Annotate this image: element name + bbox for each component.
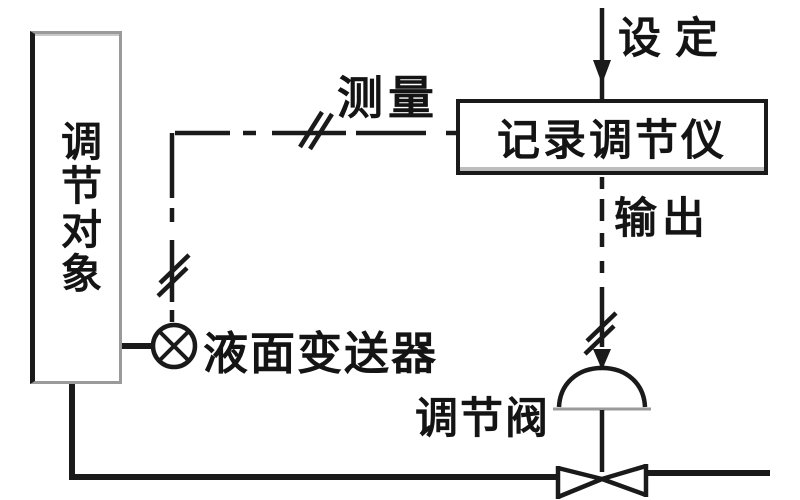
output-label: 输出 [614,184,710,246]
controlled-object-box: 调节对象 [30,31,122,384]
setpoint-line [593,8,611,100]
controlled-object-label: 调节对象 [54,120,99,296]
controller-box: 记录调节仪 [456,99,768,175]
measurement-label: 测量 [337,62,439,128]
dome-actuator-icon [553,368,651,472]
valve-label: 调节阀 [415,384,550,446]
controller-label: 记录调节仪 [497,106,727,168]
double-slash-break-icon [300,112,332,149]
control-loop-diagram: 调节对象 记录调节仪 设定 测量 输出 液面变送器 调节阀 [0,0,800,500]
measurement-signal-line [158,112,456,322]
transmitter-circle-icon [120,325,195,367]
setpoint-label: 设定 [618,4,732,66]
arrow-down-icon [593,60,611,84]
output-signal-line [585,177,616,370]
transmitter-label: 液面变送器 [203,317,438,382]
